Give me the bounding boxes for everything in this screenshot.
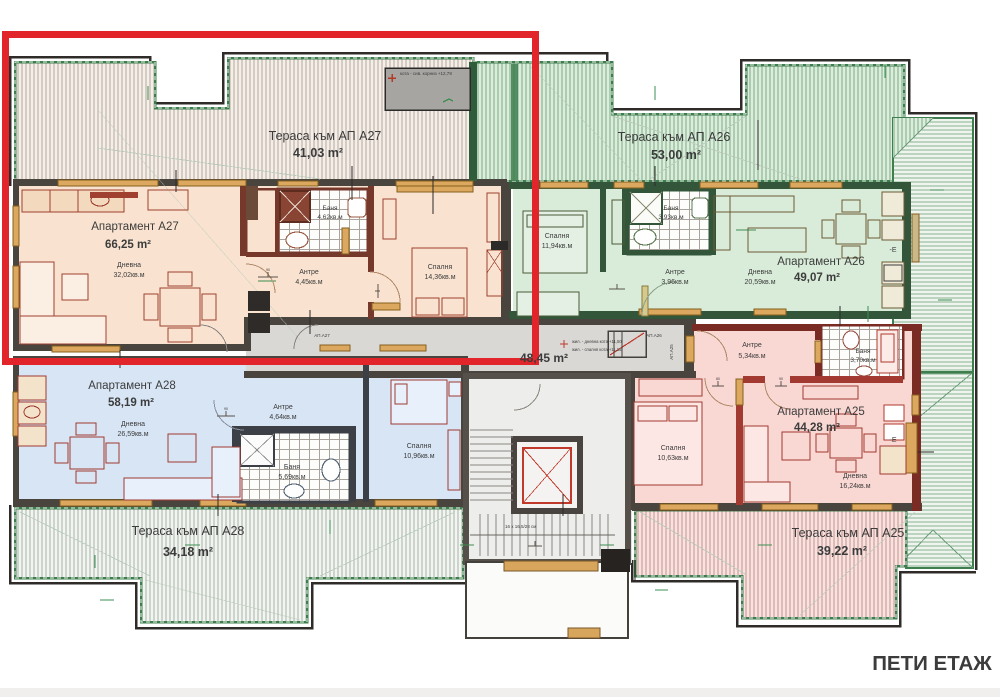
svg-text:39,22 m²: 39,22 m² [817,544,867,558]
svg-text:3,93кв.м: 3,93кв.м [658,214,684,221]
svg-text:90: 90 [779,377,783,381]
svg-text:10,63кв.м: 10,63кв.м [657,455,688,462]
svg-text:4,64кв.м: 4,64кв.м [269,414,296,421]
svg-text:5,69кв.м: 5,69кв.м [278,474,305,481]
svg-text:3,96кв.м: 3,96кв.м [661,279,688,286]
svg-text:3,70кв.м: 3,70кв.м [850,357,876,364]
svg-text:80: 80 [716,377,720,381]
svg-text:Баня: Баня [664,205,679,212]
svg-text:66,25 m²: 66,25 m² [105,239,151,251]
svg-text:Баня: Баня [284,464,300,471]
svg-text:16 x 16,5/28 см: 16 x 16,5/28 см [505,524,536,529]
svg-text:90: 90 [266,268,270,272]
svg-text:Тераса към АП А27: Тераса към АП А27 [269,129,382,143]
svg-text:Баня: Баня [323,205,338,212]
svg-text:кота - сив. корниз +12,78: кота - сив. корниз +12,78 [400,71,452,76]
svg-text:16,24кв.м: 16,24кв.м [839,483,870,490]
svg-text:-Е: -Е [890,437,897,444]
svg-text:32,02кв.м: 32,02кв.м [113,272,144,279]
svg-text:Дневна: Дневна [121,421,145,428]
svg-text:44,28 m²: 44,28 m² [794,422,840,434]
svg-text:14,36кв.м: 14,36кв.м [424,274,455,281]
svg-text:Дневна: Дневна [117,262,141,269]
svg-text:Тераса към АП А25: Тераса към АП А25 [792,526,905,540]
svg-text:Тераса към АП А28: Тераса към АП А28 [132,524,245,538]
svg-text:Антре: Антре [299,269,319,276]
svg-text:11,94кв.м: 11,94кв.м [542,243,573,250]
svg-text:Спалня: Спалня [661,445,686,452]
svg-text:4,62кв.м: 4,62кв.м [317,214,343,221]
svg-text:Антре: Антре [665,269,685,276]
svg-text:ПЕТИ ЕТАЖ: ПЕТИ ЕТАЖ [872,652,992,675]
svg-text:жил. - дневна кота +11,50: жил. - дневна кота +11,50 [572,339,622,344]
svg-text:-Е: -Е [890,247,897,254]
svg-text:58,19 m²: 58,19 m² [108,397,154,409]
svg-text:Дневна: Дневна [748,269,772,276]
svg-text:90: 90 [224,407,228,411]
svg-text:Апартамент А27: Апартамент А27 [91,221,179,233]
svg-text:10,96кв.м: 10,96кв.м [403,453,434,460]
svg-text:Тераса към АП А26: Тераса към АП А26 [618,130,731,144]
svg-text:20,59кв.м: 20,59кв.м [744,279,775,286]
svg-text:Дневна: Дневна [843,473,867,480]
svg-text:Апартамент А28: Апартамент А28 [88,380,176,392]
svg-text:53,00 m²: 53,00 m² [651,148,701,162]
svg-text:АП.А27: АП.А27 [314,333,330,338]
svg-text:АП.А25: АП.А25 [669,344,674,360]
svg-text:Апартамент А25: Апартамент А25 [777,406,865,418]
svg-text:Антре: Антре [273,404,293,411]
svg-text:26,59кв.м: 26,59кв.м [117,431,148,438]
svg-text:41,03 m²: 41,03 m² [293,146,343,160]
svg-text:49,07 m²: 49,07 m² [794,272,840,284]
svg-text:48,45 m²: 48,45 m² [520,351,568,365]
svg-text:Апартамент А26: Апартамент А26 [777,256,865,268]
svg-text:жил. - спалня кота +11,15: жил. - спалня кота +11,15 [572,347,622,352]
svg-text:Баня: Баня [856,348,871,355]
svg-text:5,34кв.м: 5,34кв.м [738,353,765,360]
svg-text:Спалня: Спалня [428,264,453,271]
svg-text:Спалня: Спалня [545,233,570,240]
svg-text:34,18 m²: 34,18 m² [163,545,213,559]
svg-text:Спалня: Спалня [407,443,432,450]
svg-text:4,45кв.м: 4,45кв.м [295,279,322,286]
svg-text:Антре: Антре [742,342,762,349]
svg-text:АП.А26: АП.А26 [646,333,662,338]
